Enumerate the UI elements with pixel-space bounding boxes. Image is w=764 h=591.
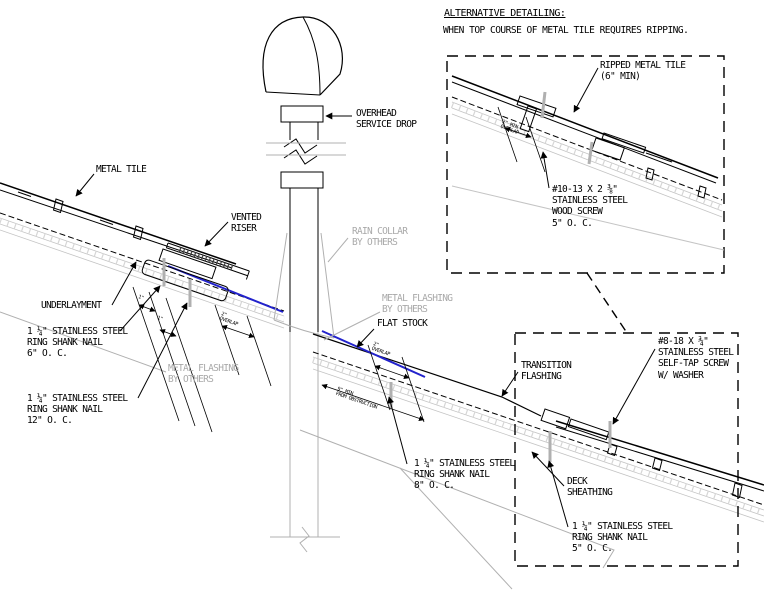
label-metal-flashing-center: METAL FLASHING BY OTHERS (382, 293, 452, 315)
label-underlayment: UNDERLAYMENT (41, 300, 101, 311)
label-overhead-service-drop: OVERHEAD SERVICE DROP (356, 108, 416, 130)
label-vented-riser: VENTED RISER (231, 212, 261, 234)
label-wood-screw: #10-13 X 2 ⅜" STAINLESS STEEL WOOD SCREW… (552, 184, 627, 229)
alt-detail-title: ALTERNATIVE DETAILING: (444, 8, 565, 20)
label-metal-tile: METAL TILE (96, 164, 146, 175)
alt-detail-subtitle: WHEN TOP COURSE OF METAL TILE REQUIRES R… (443, 25, 688, 36)
label-nail-5oc: 1 ¼" STAINLESS STEEL RING SHANK NAIL 5" … (572, 521, 672, 555)
label-flat-stock: FLAT STOCK (377, 318, 427, 329)
cad-drawing: ALTERNATIVE DETAILING: WHEN TOP COURSE O… (0, 0, 764, 591)
label-nail-12oc: 1 ¼" STAINLESS STEEL RING SHANK NAIL 12"… (27, 393, 127, 427)
label-deck-sheathing: DECK SHEATHING (567, 476, 612, 498)
label-nail-6oc: 1 ¼" STAINLESS STEEL RING SHANK NAIL 6" … (27, 326, 127, 360)
label-self-tap-screw: #8-18 X ¾" STAINLESS STEEL SELF-TAP SCRE… (658, 336, 733, 381)
service-mast-linework (263, 17, 346, 552)
label-metal-flashing-left: METAL FLASHING BY OTHERS (168, 363, 238, 385)
label-rain-collar: RAIN COLLAR BY OTHERS (352, 226, 407, 248)
leader-lines (76, 68, 655, 527)
label-transition-flashing: TRANSITION FLASHING (521, 360, 571, 382)
label-nail-8oc: 1 ¼" STAINLESS STEEL RING SHANK NAIL 8" … (414, 458, 514, 492)
label-ripped-metal-tile: RIPPED METAL TILE (6" MIN) (600, 60, 685, 82)
